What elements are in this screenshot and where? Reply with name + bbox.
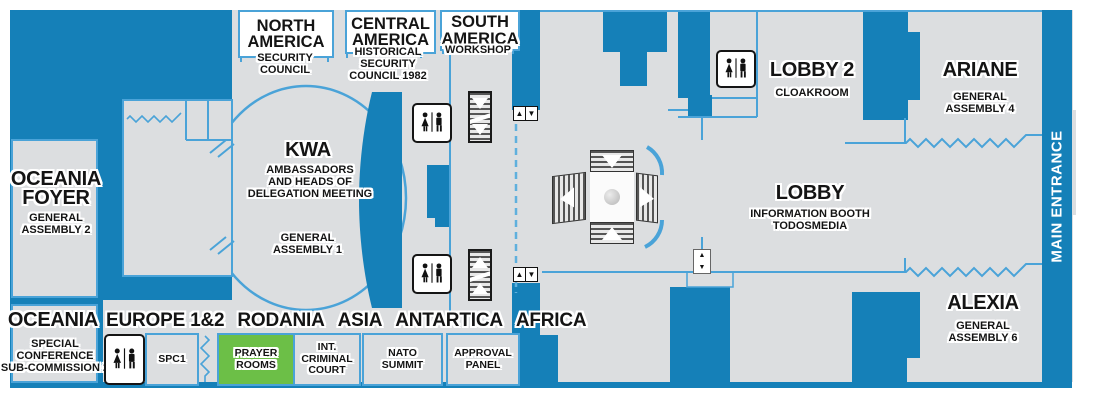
room-title-oceania-foyer: OCEANIA FOYER bbox=[6, 170, 106, 208]
region-africa: AFRICA bbox=[516, 310, 587, 332]
region-rodania: RODANIA bbox=[237, 310, 324, 332]
elevator-buttons-icon: ▲▼ bbox=[513, 106, 538, 121]
callout-north-america: NORTH AMERICA bbox=[238, 10, 334, 58]
room-detail-oceania-foyer: GENERAL ASSEMBLY 2 bbox=[8, 213, 104, 237]
escalator-ramp-up-icon bbox=[590, 222, 634, 244]
restroom-icon bbox=[412, 254, 452, 294]
room-box-prayer-rooms: PRAYER ROOMS bbox=[217, 333, 295, 386]
escalator-hub-icon bbox=[604, 189, 620, 205]
room-title-ariane: ARIANE bbox=[935, 61, 1025, 80]
room-title-lobby: LOBBY bbox=[765, 184, 855, 203]
room-title-south-america: SOUTH AMERICA bbox=[442, 14, 519, 46]
room-detail-south-america: WORKSHOP bbox=[436, 45, 520, 57]
room-detail-lobby2: CLOAKROOM bbox=[762, 88, 862, 100]
elevator-buttons-icon: ▲▼ bbox=[513, 267, 538, 282]
down-arrow-icon: ▼ bbox=[525, 107, 537, 120]
region-europe-1-2: EUROPE 1&2 bbox=[106, 310, 224, 332]
room-label-prayer-rooms: PRAYER ROOMS bbox=[235, 348, 278, 371]
room-label-spc1: SPC1 bbox=[158, 354, 185, 366]
room-detail-lobby: INFORMATION BOOTH TODOSMEDIA bbox=[745, 209, 875, 233]
room-title-oceania: OCEANIA bbox=[4, 311, 102, 330]
room-title-alexia: ALEXIA bbox=[938, 294, 1028, 313]
region-asia: ASIA bbox=[338, 310, 383, 332]
escalator-down-icon bbox=[468, 91, 492, 143]
main-entrance-label: MAIN ENTRANCE bbox=[1049, 130, 1066, 262]
main-entrance-bar: MAIN ENTRANCE bbox=[1042, 10, 1072, 382]
room-box-int-criminal-court: INT. CRIMINAL COURT bbox=[293, 333, 361, 386]
room-detail-north-america: SECURITY COUNCIL bbox=[238, 53, 332, 77]
escalator-up-icon bbox=[468, 249, 492, 301]
room-box-nato-summit: NATO SUMMIT bbox=[362, 333, 443, 386]
room-box-spc1: SPC1 bbox=[145, 333, 199, 386]
restroom-icon bbox=[104, 334, 145, 385]
floorplan: NORTH AMERICA SECURITY COUNCIL CENTRAL A… bbox=[0, 0, 1100, 404]
room-detail-kwa: GENERAL ASSEMBLY 1 bbox=[250, 233, 365, 257]
escalator-ramp-left-icon bbox=[552, 172, 586, 224]
room-detail-oceania: SPECIAL CONFERENCE SUB-COMMISSION 2 bbox=[0, 339, 116, 375]
up-arrow-icon: ▲ bbox=[694, 250, 710, 262]
corridor-region-names: EUROPE 1&2 RODANIA ASIA ANTARTICA AFRICA bbox=[106, 310, 586, 332]
room-detail-ariane: GENERAL ASSEMBLY 4 bbox=[935, 92, 1025, 116]
room-label-int-criminal-court: INT. CRIMINAL COURT bbox=[301, 342, 352, 377]
down-arrow-icon: ▼ bbox=[525, 268, 537, 281]
room-title-north-america: NORTH AMERICA bbox=[248, 18, 325, 50]
room-detail-alexia: GENERAL ASSEMBLY 6 bbox=[938, 321, 1028, 345]
restroom-icon bbox=[412, 103, 452, 143]
room-subtitle-kwa: AMBASSADORS AND HEADS OF DELEGATION MEET… bbox=[240, 165, 380, 201]
room-label-approval-panel: APPROVAL PANEL bbox=[454, 348, 512, 371]
restroom-icon bbox=[716, 50, 756, 88]
region-antartica: ANTARTICA bbox=[395, 310, 503, 332]
room-title-lobby2: LOBBY 2 bbox=[762, 61, 862, 80]
room-title-central-america: CENTRAL AMERICA bbox=[351, 16, 430, 48]
down-arrow-icon: ▼ bbox=[694, 262, 710, 274]
room-detail-central-america: HISTORICAL SECURITY COUNCIL 1982 bbox=[336, 47, 440, 83]
elevator-buttons-icon: ▲▼ bbox=[693, 249, 711, 274]
escalator-ramp-down-icon bbox=[590, 150, 634, 172]
up-arrow-icon: ▲ bbox=[514, 107, 525, 120]
room-box-approval-panel: APPROVAL PANEL bbox=[446, 333, 520, 386]
room-label-nato-summit: NATO SUMMIT bbox=[382, 348, 423, 371]
up-arrow-icon: ▲ bbox=[514, 268, 525, 281]
escalator-ramp-right-icon bbox=[636, 173, 658, 224]
room-title-kwa: KWA bbox=[258, 141, 358, 160]
